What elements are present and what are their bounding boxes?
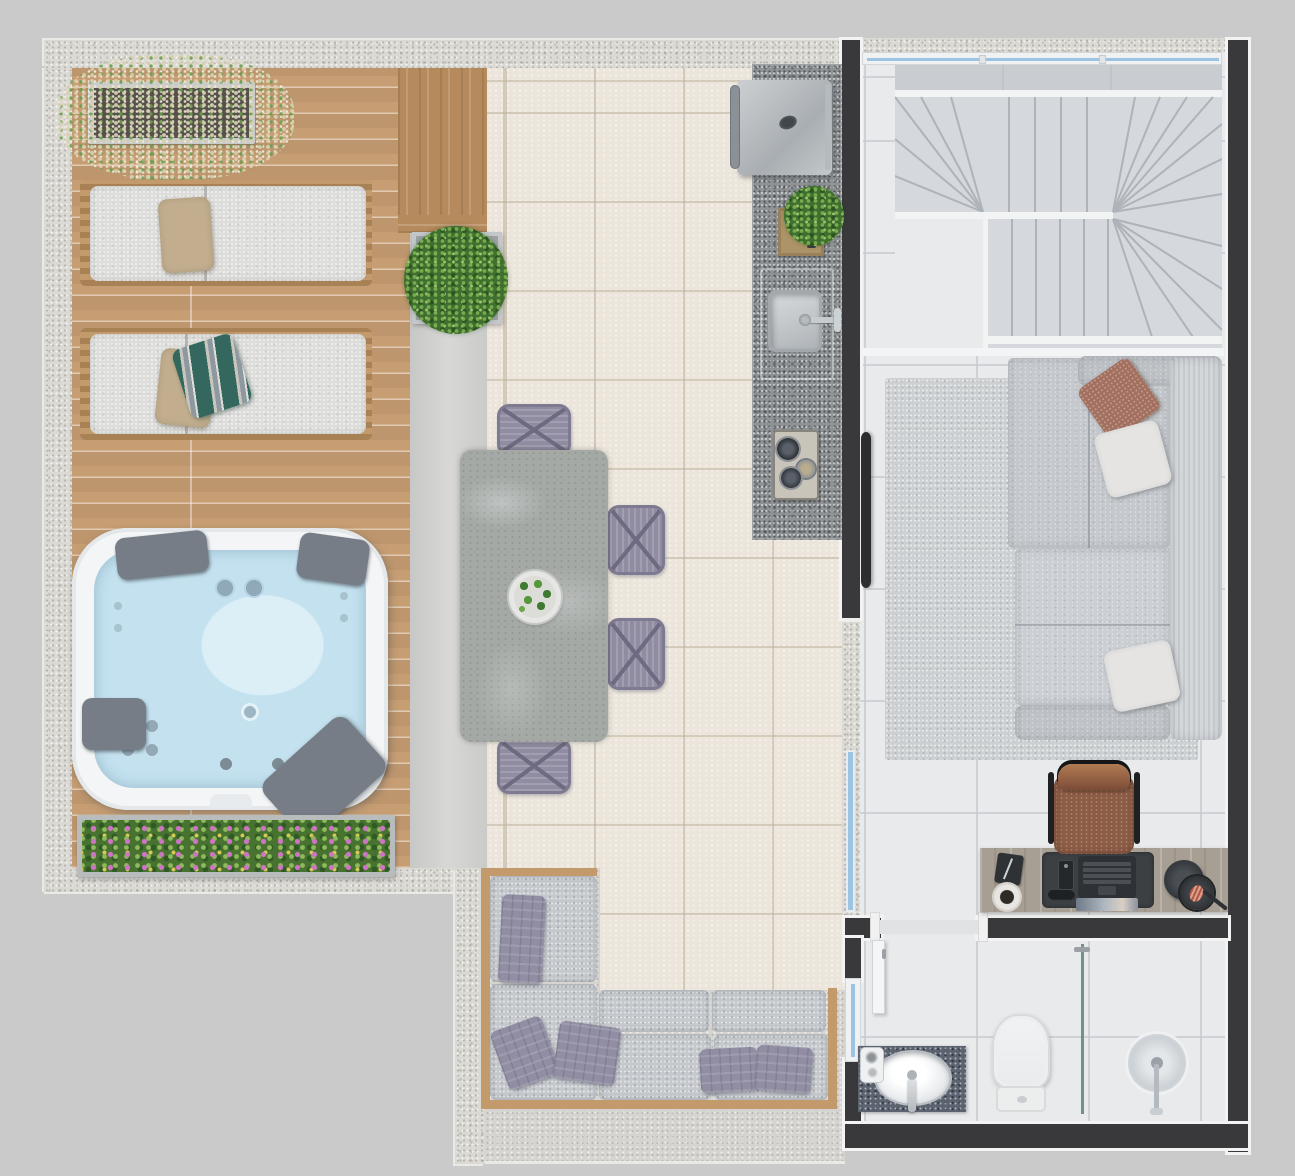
desk-chair-frame-right: [1134, 772, 1140, 844]
soap-jar: [867, 1067, 878, 1078]
toilet-flush-button: [1017, 1096, 1027, 1103]
bathroom-window-glass: [851, 984, 855, 1057]
outdoor-sofa-frame-left: [481, 868, 490, 1109]
purple-pillow: [498, 894, 547, 984]
sun-lounger-cushion: [90, 186, 366, 281]
soap-dispenser-set: [861, 1048, 883, 1082]
dining-chair-right: [607, 618, 665, 690]
sofa-armrest-bottom: [1015, 705, 1170, 740]
window-mullion: [1099, 55, 1106, 64]
jacuzzi-spa: [72, 528, 388, 810]
outdoor-sofa-back-cushion: [712, 990, 826, 1032]
bathroom-door-threshold: [880, 920, 978, 934]
bathroom-door-jamb: [978, 912, 988, 942]
exterior-wall-right: [1228, 40, 1248, 1152]
stair-window: [862, 52, 1222, 65]
outdoor-sofa-frame-top: [481, 868, 597, 876]
shower-pipe-cap: [1150, 1108, 1163, 1115]
faucet-base: [799, 314, 811, 326]
counter-plant: [784, 186, 844, 246]
bbq-lid-vent: [777, 113, 798, 131]
smartphone: [1058, 860, 1074, 890]
dining-chair-top: [497, 404, 571, 456]
shower-glass-partition: [1081, 944, 1084, 1114]
pen: [1003, 858, 1013, 879]
bbq-handle-bar: [731, 86, 739, 168]
desk-chair-backrest: [1058, 764, 1130, 790]
window-mullion: [979, 55, 986, 64]
terrace-wall-left: [44, 68, 72, 892]
burner: [781, 468, 801, 488]
outdoor-sofa-frame-bottom: [481, 1100, 837, 1109]
toilet-lid: [992, 1014, 1050, 1090]
boxwood-shrub: [404, 226, 508, 334]
soap-jar: [865, 1051, 878, 1064]
bbq-grill: [737, 80, 832, 175]
outdoor-sofa-back-cushion: [599, 990, 709, 1032]
shower-pipe: [1154, 1064, 1159, 1112]
toilet-base: [996, 1086, 1046, 1112]
phone-camera-dot: [1064, 864, 1068, 868]
burner: [777, 438, 799, 460]
laptop-trackpad: [1098, 886, 1116, 895]
beige-pillow: [157, 196, 214, 273]
floor-plan: [0, 0, 1295, 1176]
sink-drain-dot: [907, 1070, 917, 1080]
table-centerpiece: [509, 571, 561, 623]
cooktop-tray: [773, 430, 819, 500]
outdoor-sofa-frame-right: [828, 988, 837, 1109]
purple-pillow: [699, 1047, 759, 1094]
jacuzzi-headrest: [82, 698, 146, 750]
shower-glass-handle: [1074, 947, 1090, 952]
bathroom-door-jamb: [870, 912, 880, 942]
bbq-side-shelf: [825, 84, 831, 170]
laptop: [1078, 856, 1136, 898]
glasses: [1048, 890, 1074, 899]
coffee-cup: [994, 884, 1020, 910]
living-room-threshold: [860, 348, 1224, 356]
purple-pillow: [552, 1020, 621, 1086]
seat-seam: [1015, 624, 1170, 626]
flower-planter-box: [77, 815, 395, 877]
wall-mounted-tv: [861, 432, 871, 588]
jacuzzi-access-notch: [210, 794, 252, 808]
stair-window-glass: [867, 58, 1219, 61]
laptop-keyboard: [1083, 862, 1131, 884]
bathroom-wall-bottom: [845, 1124, 1248, 1148]
jacuzzi-headrest: [295, 531, 371, 586]
dining-chair-right: [607, 505, 665, 575]
divider-wall: [842, 40, 860, 618]
bathroom-door-leaf: [872, 940, 885, 1014]
accent-wood-panel: [398, 68, 490, 215]
indoor-wall-top: [862, 38, 1228, 52]
bathroom-wall-top-right: [978, 918, 1228, 938]
centerpiece-plant: [514, 576, 556, 618]
sink-faucet: [908, 1078, 916, 1112]
door-handle: [882, 949, 886, 959]
bathroom-wall-left-a: [845, 938, 861, 980]
dining-chair-bottom: [497, 738, 571, 794]
faucet-handle: [834, 308, 841, 332]
sliding-glass-door: [848, 752, 853, 910]
purple-pillow: [754, 1044, 813, 1094]
laptop-screen: [1076, 898, 1138, 911]
flowering-plants: [82, 820, 390, 872]
notepad: [994, 852, 1024, 885]
staircase: [895, 64, 1222, 350]
